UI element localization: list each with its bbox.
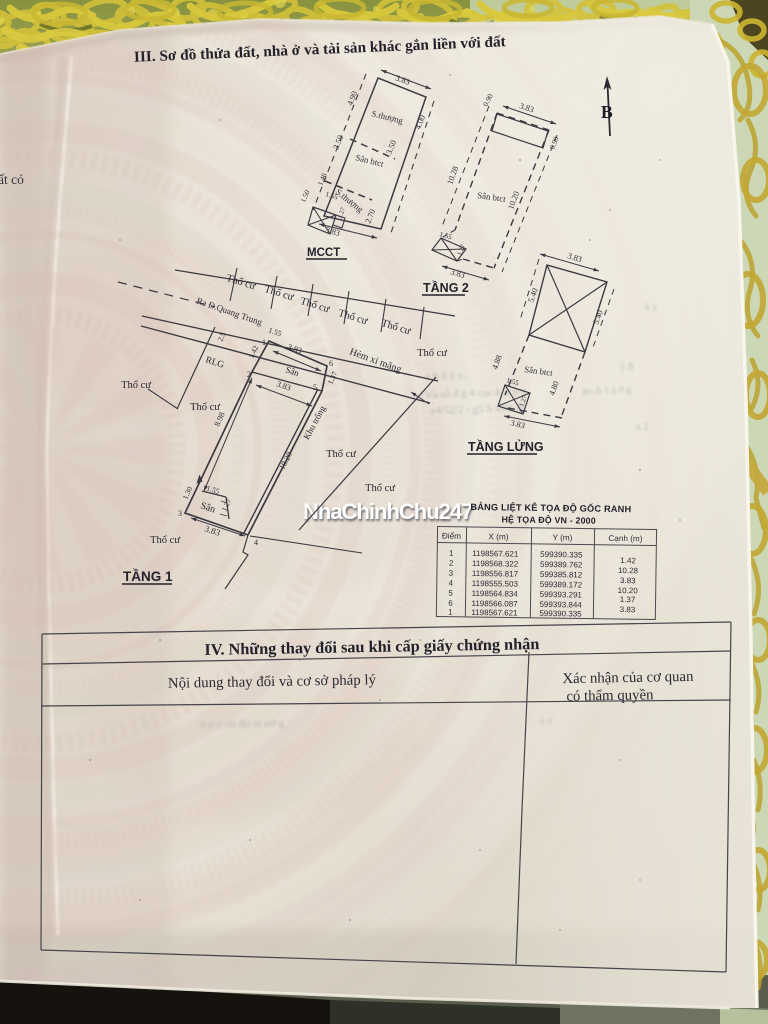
- svg-text:Thổ cư: Thổ cư: [365, 483, 395, 494]
- svg-text:ất có: ất có: [0, 172, 24, 187]
- svg-text:4: 4: [449, 579, 454, 588]
- svg-text:10.20: 10.20: [618, 586, 639, 595]
- svg-text:Thổ cư: Thổ cư: [150, 535, 180, 546]
- svg-text:5: 5: [313, 383, 317, 392]
- svg-text:Y (m): Y (m): [552, 533, 572, 542]
- svg-text:có thẩm quyền: có thẩm quyền: [566, 687, 654, 705]
- svg-text:1198556.817: 1198556.817: [472, 569, 519, 579]
- svg-text:k ạ: k ạ: [645, 302, 658, 313]
- svg-text:ý 8: ý 8: [620, 361, 635, 373]
- svg-text:ạo. b 1 ạ ở g: ạo. b 1 ạ ở g: [582, 384, 632, 397]
- svg-text:TẦNG 2: TẦNG 2: [423, 280, 469, 295]
- svg-text:3.83: 3.83: [620, 576, 636, 585]
- svg-text:Thổ cư: Thổ cư: [326, 449, 356, 460]
- svg-text:TẦNG LỬNG: TẦNG LỬNG: [468, 439, 544, 454]
- svg-text:599390.335: 599390.335: [540, 550, 583, 560]
- svg-text:BẢNG LIỆT KÊ TỌA ĐỘ GỐC RANH: BẢNG LIỆT KÊ TỌA ĐỘ GỐC RANH: [470, 501, 631, 514]
- svg-text:n ư c ơn đư ỏi ưở g: n ư c ơn đư ỏi ưở g: [200, 718, 285, 731]
- svg-text:1: 1: [262, 338, 266, 347]
- svg-text:3: 3: [178, 509, 182, 518]
- svg-text:X (m): X (m): [488, 532, 508, 541]
- svg-text:6: 6: [448, 599, 453, 608]
- svg-text:1.37: 1.37: [620, 595, 636, 604]
- svg-text:1: 1: [449, 549, 454, 558]
- svg-text:Thổ cư: Thổ cư: [190, 402, 220, 413]
- svg-text:ă ơ: ă ơ: [540, 716, 553, 727]
- svg-text:1198567.621: 1198567.621: [471, 608, 518, 618]
- svg-text:599385.812: 599385.812: [540, 570, 583, 580]
- svg-text:599389.762: 599389.762: [540, 560, 583, 570]
- svg-text:Thổ cư: Thổ cư: [417, 348, 447, 359]
- svg-text:10.28: 10.28: [618, 566, 639, 575]
- svg-text:4: 4: [254, 538, 258, 547]
- svg-text:Cạnh (m): Cạnh (m): [608, 534, 643, 543]
- svg-text:1198555.503: 1198555.503: [472, 579, 519, 589]
- svg-text:1198564.834: 1198564.834: [472, 589, 519, 599]
- svg-text:1198568.322: 1198568.322: [472, 559, 519, 569]
- svg-text:Điểm: Điểm: [442, 531, 461, 541]
- svg-text:x b ồ ỷ s..: x b ồ ỷ s..: [425, 370, 468, 383]
- svg-text:599393.291: 599393.291: [540, 590, 583, 600]
- svg-text:2: 2: [449, 559, 454, 568]
- svg-text:MCCT: MCCT: [307, 247, 340, 259]
- svg-text:Thổ cư: Thổ cư: [121, 380, 151, 391]
- svg-text:NhaChinhChu247: NhaChinhChu247: [303, 499, 473, 524]
- svg-text:599389.172: 599389.172: [540, 580, 583, 590]
- svg-text:B: B: [601, 102, 613, 122]
- svg-text:Xác nhận của cơ quan: Xác nhận của cơ quan: [562, 669, 694, 687]
- svg-text:n 2: n 2: [636, 422, 649, 433]
- svg-text:3: 3: [449, 569, 454, 578]
- svg-text:TẦNG 1: TẦNG 1: [123, 569, 173, 584]
- svg-text:599390.335: 599390.335: [539, 609, 582, 619]
- svg-text:5: 5: [448, 589, 453, 598]
- svg-text:1: 1: [448, 608, 453, 617]
- svg-text:1.42: 1.42: [620, 556, 636, 565]
- svg-text:3.83: 3.83: [620, 605, 636, 614]
- svg-text:HỆ TỌA ĐỘ VN - 2000: HỆ TỌA ĐỘ VN - 2000: [501, 513, 596, 525]
- svg-text:2: 2: [247, 370, 251, 379]
- svg-text:1198567.621: 1198567.621: [472, 549, 519, 559]
- svg-text:6: 6: [329, 359, 333, 368]
